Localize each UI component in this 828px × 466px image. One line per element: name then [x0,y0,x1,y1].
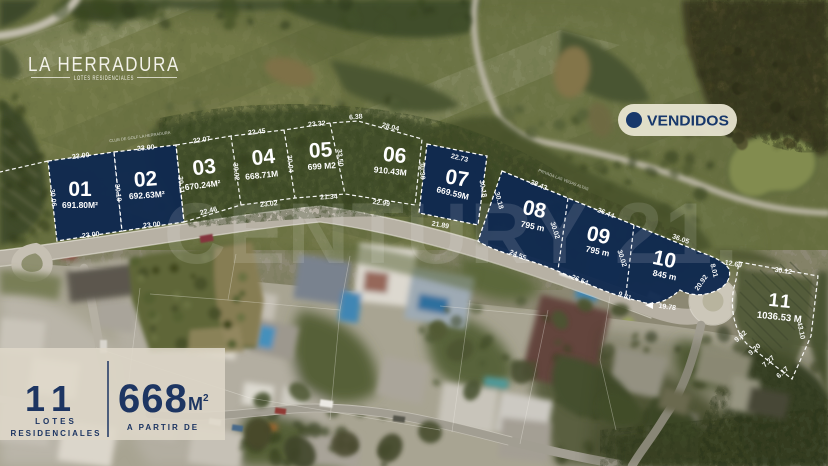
svg-text:28.04: 28.04 [381,122,400,133]
svg-text:19.78: 19.78 [658,303,676,312]
svg-text:LOTES RESIDENCIALES: LOTES RESIDENCIALES [74,75,134,82]
svg-text:22.07: 22.07 [193,136,212,146]
svg-text:01: 01 [68,178,92,201]
svg-text:30.06: 30.06 [48,189,57,207]
svg-text:7.27: 7.27 [762,355,777,369]
svg-text:06: 06 [382,143,408,168]
svg-text:CENTURY 21.: CENTURY 21. [164,186,740,282]
svg-text:VENDIDOS: VENDIDOS [647,113,729,130]
svg-text:A PARTIR DE: A PARTIR DE [127,423,199,432]
svg-text:04: 04 [251,145,277,170]
svg-text:668.71M: 668.71M [245,168,279,181]
svg-text:699 M2: 699 M2 [307,160,336,172]
svg-text:668: 668 [118,377,188,421]
svg-text:9.82: 9.82 [734,330,749,344]
svg-text:03: 03 [191,155,217,181]
svg-text:11: 11 [25,378,79,419]
svg-text:02: 02 [133,167,158,192]
svg-text:33.50: 33.50 [335,149,344,167]
svg-text:11: 11 [767,290,793,313]
svg-text:23.32: 23.32 [308,120,326,129]
svg-text:LA HERRADURA: LA HERRADURA [28,54,180,76]
svg-text:910.43M: 910.43M [373,164,407,177]
svg-text:30.02: 30.02 [231,163,240,181]
svg-text:43.10: 43.10 [795,321,806,340]
svg-text:LOTES: LOTES [35,417,77,426]
svg-text:30.04: 30.04 [285,155,294,173]
svg-text:6.38: 6.38 [349,113,363,121]
svg-text:CLUB DE GOLF LA HERRADURA: CLUB DE GOLF LA HERRADURA [109,130,171,144]
svg-text:23.00: 23.00 [82,231,100,240]
svg-text:30.12: 30.12 [774,267,792,276]
svg-text:M: M [188,394,203,414]
svg-text:22.45: 22.45 [248,128,266,137]
svg-text:23.00: 23.00 [143,221,161,230]
svg-text:05: 05 [308,138,333,163]
svg-text:2: 2 [203,393,209,404]
svg-text:RESIDENCIALES: RESIDENCIALES [11,429,102,438]
svg-text:691.80M²: 691.80M² [62,200,98,210]
svg-text:30.30: 30.30 [417,162,425,180]
